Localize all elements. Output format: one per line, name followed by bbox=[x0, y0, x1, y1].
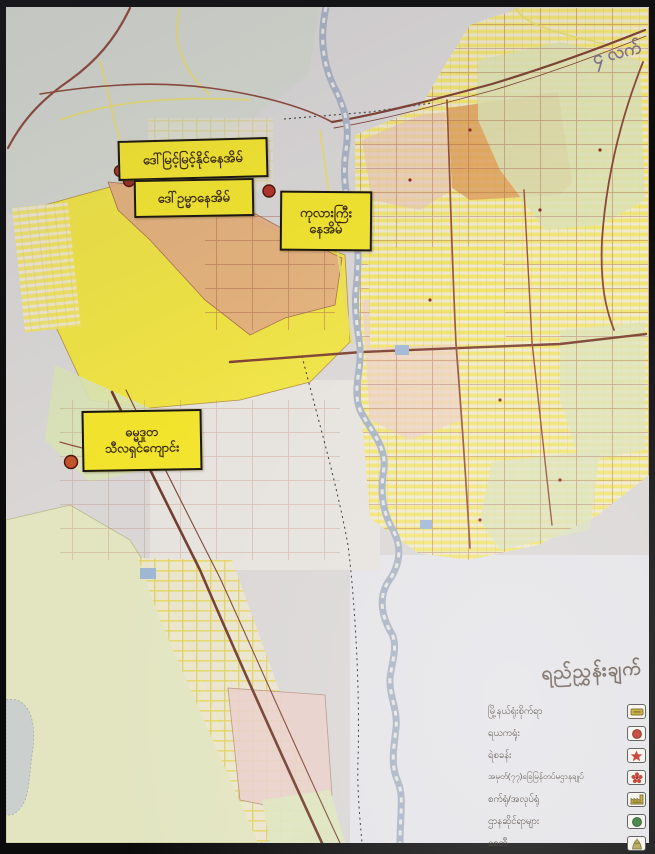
police-station-icon bbox=[627, 748, 646, 763]
annotation-label-daw-myint-myint-naing-house: ဒေါ်မြင့်မြင့်နိုင်နေအိမ် bbox=[118, 137, 269, 181]
annotation-text-line1: ဓမ္မဒူတ bbox=[125, 425, 158, 441]
annotation-text: ဒေါ်မြင့်မြင့်နိုင်နေအိမ် bbox=[143, 150, 243, 169]
annotation-label-daw-ohnmar-house: ဒေါ်ဥမ္မာနေအိမ် bbox=[134, 178, 255, 218]
legend-item-township-office: မြို့နယ်ရုံးစိုက်ရာ bbox=[488, 704, 646, 719]
location-marker-dhammaduta bbox=[65, 456, 78, 469]
township-office-icon bbox=[627, 704, 646, 719]
map-photo: ဒေါ်မြင့်မြင့်နိုင်နေအိမ် ဒေါ်ဥမ္မာနေအိမ… bbox=[0, 0, 655, 854]
legend-item-departments: ဌာနဆိုင်ရာများ bbox=[488, 814, 646, 829]
annotation-label-dhammaduta-nunnery: ဓမ္မဒူတ သီလရှင်ကျောင်း bbox=[81, 409, 202, 472]
legend-item-military-hq: အမှတ်(၇၇)ခြေမြန်တပ်မဌာနချုပ် bbox=[488, 770, 646, 785]
military-hq-icon bbox=[627, 770, 646, 785]
pagoda-icon bbox=[627, 836, 646, 851]
legend: ရည်ညွှန်းချက် မြို့နယ်ရုံးစိုက်ရာ ရယကရုံ… bbox=[488, 660, 650, 854]
ward-office-icon bbox=[627, 726, 646, 741]
annotation-text: ဒေါ်ဥမ္မာနေအိမ် bbox=[158, 189, 231, 207]
legend-item-pagoda: စေတီ bbox=[488, 836, 646, 851]
legend-title: ရည်ညွှန်းချက် bbox=[487, 656, 650, 692]
departments-icon bbox=[627, 814, 646, 829]
annotation-text-line2: နေအိမ် bbox=[309, 221, 342, 238]
location-marker-kular-gyi bbox=[263, 185, 275, 197]
legend-item-police-station: ရဲစခန်း bbox=[488, 748, 646, 763]
factory-icon bbox=[627, 792, 646, 807]
legend-item-ward-office: ရယကရုံး bbox=[488, 726, 646, 741]
annotation-text-line1: ကုလားကြီး bbox=[300, 205, 352, 222]
annotation-text-line2: သီလရှင်ကျောင်း bbox=[105, 440, 179, 457]
annotation-label-kular-gyi-house: ကုလားကြီး နေအိမ် bbox=[280, 191, 373, 252]
legend-item-factory: စက်ရုံ/အလုပ်ရုံ bbox=[488, 792, 646, 807]
